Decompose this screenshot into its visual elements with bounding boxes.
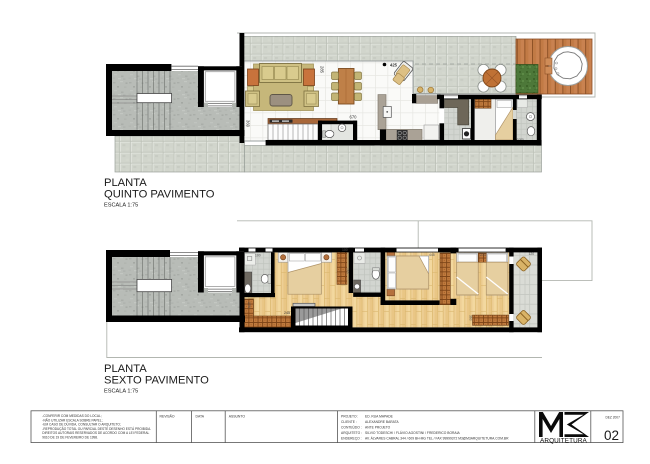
svg-text:ENDEREÇO :: ENDEREÇO : — [341, 437, 362, 441]
svg-text:ANTE PROJETO: ANTE PROJETO — [365, 426, 391, 430]
svg-text:425: 425 — [390, 62, 398, 67]
svg-text:SEXTO PAVIMENTO: SEXTO PAVIMENTO — [104, 374, 209, 386]
svg-text:445: 445 — [429, 253, 435, 257]
svg-text:SILVIO TODESCHI / FLÁVIO AGOST: SILVIO TODESCHI / FLÁVIO AGOSTINI / FRED… — [365, 431, 461, 435]
svg-text:ARQUITETO :: ARQUITETO : — [341, 431, 362, 435]
svg-text:9610 DE 19 DE FEVEREIRO DE 199: 9610 DE 19 DE FEVEREIRO DE 1998. — [42, 436, 98, 440]
svg-text:ARQUITETURA: ARQUITETURA — [540, 438, 588, 445]
svg-text:ASSUNTO: ASSUNTO — [229, 414, 246, 418]
svg-text:ESCALA 1:75: ESCALA 1:75 — [104, 203, 138, 209]
svg-text:CONTEÚDO :: CONTEÚDO : — [341, 426, 362, 430]
svg-text:DEZ 2007: DEZ 2007 — [606, 416, 621, 420]
svg-text:120: 120 — [529, 252, 535, 256]
svg-text:PLANTA: PLANTA — [104, 363, 147, 375]
svg-text:174: 174 — [247, 302, 251, 308]
svg-text:360: 360 — [246, 120, 251, 128]
svg-text:285: 285 — [320, 66, 325, 74]
svg-text:AV. ÁLVARES CABRAL 344 / 609 B: AV. ÁLVARES CABRAL 344 / 609 BH-MG TEL /… — [365, 437, 509, 441]
svg-text:100: 100 — [255, 254, 261, 258]
svg-text:-NÃO UTILIZAR ESCALA SOBRE PAP: -NÃO UTILIZAR ESCALA SOBRE PAPEL; — [42, 417, 102, 422]
svg-text:360: 360 — [469, 315, 473, 321]
svg-text:QUINTO PAVIMENTO: QUINTO PAVIMENTO — [104, 188, 215, 200]
svg-text:ED. RUA MAPADE: ED. RUA MAPADE — [365, 415, 394, 419]
svg-text:REVISÃO: REVISÃO — [160, 413, 175, 418]
svg-text:270: 270 — [480, 253, 486, 257]
svg-text:PLANTA: PLANTA — [104, 177, 147, 189]
svg-text:-EM CASO DE DÚVIDA, CONSULTAR: -EM CASO DE DÚVIDA, CONSULTAR O ARQUITET… — [42, 422, 121, 427]
svg-text:100: 100 — [342, 248, 348, 252]
svg-text:PROJETO :: PROJETO : — [341, 415, 358, 419]
svg-text:02: 02 — [604, 428, 619, 443]
svg-text:CLIENTE :: CLIENTE : — [341, 420, 357, 424]
svg-text:ALEXANDRE BARATA: ALEXANDRE BARATA — [365, 420, 399, 424]
svg-text:165: 165 — [346, 268, 350, 274]
svg-text:670: 670 — [350, 115, 358, 120]
svg-text:ESCALA 1:75: ESCALA 1:75 — [104, 389, 138, 395]
svg-text:-REPRODUÇÃO TOTAL OU PARCIAL D: -REPRODUÇÃO TOTAL OU PARCIAL DESTE DESEN… — [42, 426, 151, 431]
svg-text:DATA: DATA — [196, 414, 205, 418]
svg-text:245: 245 — [284, 311, 290, 315]
